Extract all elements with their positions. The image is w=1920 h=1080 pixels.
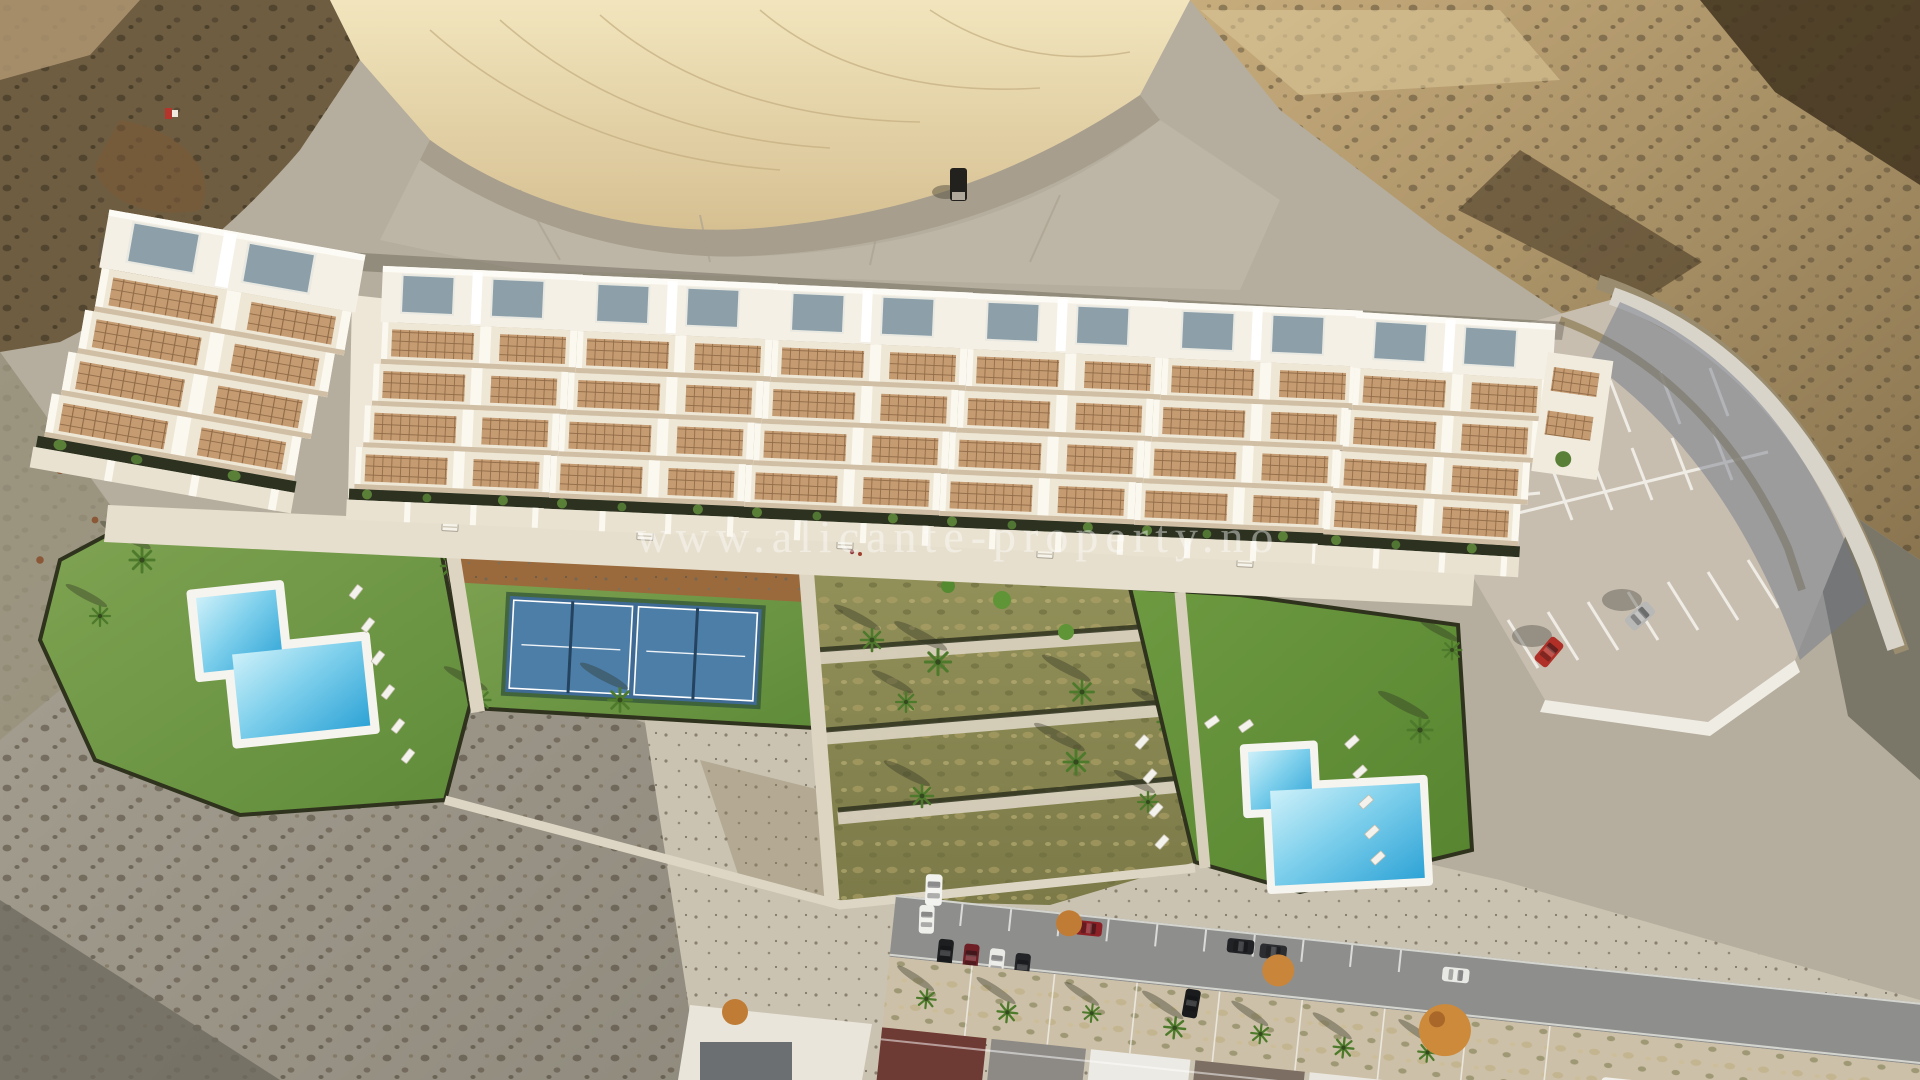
- autumn-tree: [722, 999, 748, 1025]
- green-bush: [1058, 624, 1074, 640]
- car-shadow: [1602, 589, 1642, 611]
- apartment-block-2: [346, 265, 583, 530]
- red-bush: [92, 517, 99, 524]
- street-car-black-1: [1226, 938, 1254, 955]
- right-pool-water-large: [1270, 783, 1425, 886]
- left-pool-water-large: [232, 641, 370, 739]
- red-bush: [36, 556, 44, 564]
- padel-courts: [501, 592, 766, 709]
- apartment-block-3: [541, 274, 778, 539]
- aerial-render-scene: www.alicante-property.no: [0, 0, 1920, 1080]
- dirt-track-vehicle-hood: [952, 192, 965, 200]
- apartment-block-4: [736, 283, 973, 548]
- green-bush: [993, 591, 1011, 609]
- watermark-text: www.alicante-property.no: [636, 511, 1281, 562]
- street-car-white: [919, 905, 935, 934]
- survey-marker: [165, 108, 172, 119]
- street-car-white-2: [1442, 966, 1470, 983]
- corner-building-dark-roof: [700, 1042, 792, 1080]
- survey-marker-flag: [172, 110, 178, 117]
- street-van-white: [925, 874, 943, 906]
